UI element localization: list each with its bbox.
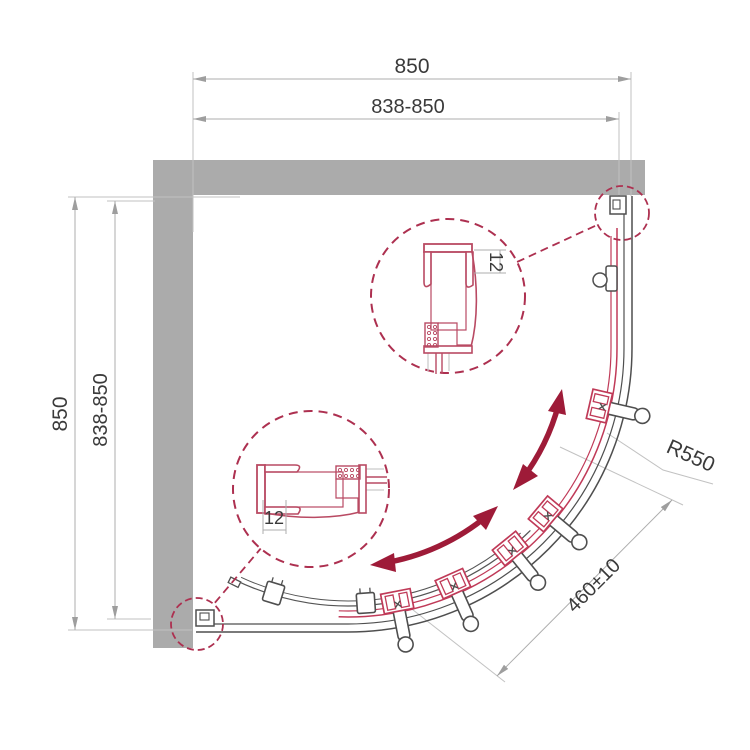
shower-enclosure-plan: 850 838-850 850 838-850 R550 460±10 12 1…: [0, 0, 750, 750]
arrow-upper-head-top: [548, 389, 566, 415]
glass-clamp: [262, 576, 287, 605]
detail-callouts: [171, 186, 649, 650]
door-handle: [593, 266, 617, 291]
leader-upper: [517, 225, 597, 262]
dim-top-range-label: 838-850: [371, 96, 444, 118]
dim-top-overall-label: 850: [394, 55, 429, 78]
slide-arrows: [370, 389, 566, 572]
detail-upper-adjust-label: 12: [486, 252, 506, 272]
wall-profile-top: [610, 196, 626, 214]
glass-clamp: [356, 587, 376, 613]
walls: [153, 160, 645, 648]
left-wall: [153, 160, 193, 648]
dim-left-range-label: 838-850: [90, 373, 112, 446]
entry-width-label: 460±10: [562, 554, 625, 617]
arrow-lower-body: [382, 515, 488, 563]
arrow-lower-head-left: [370, 553, 396, 572]
radius-label: R550: [663, 435, 718, 476]
leader-lower: [213, 547, 262, 605]
roller-cluster: [435, 568, 487, 636]
detail-lower-adjust-label: 12: [264, 508, 284, 528]
top-wall: [153, 160, 645, 195]
arrow-upper-head-bottom: [513, 464, 538, 490]
wall-profile-bottom: [196, 610, 214, 626]
dim-left-overall-label: 850: [49, 396, 72, 431]
drawing-canvas: 850 838-850 850 838-850 R550 460±10 12 1…: [0, 0, 750, 750]
